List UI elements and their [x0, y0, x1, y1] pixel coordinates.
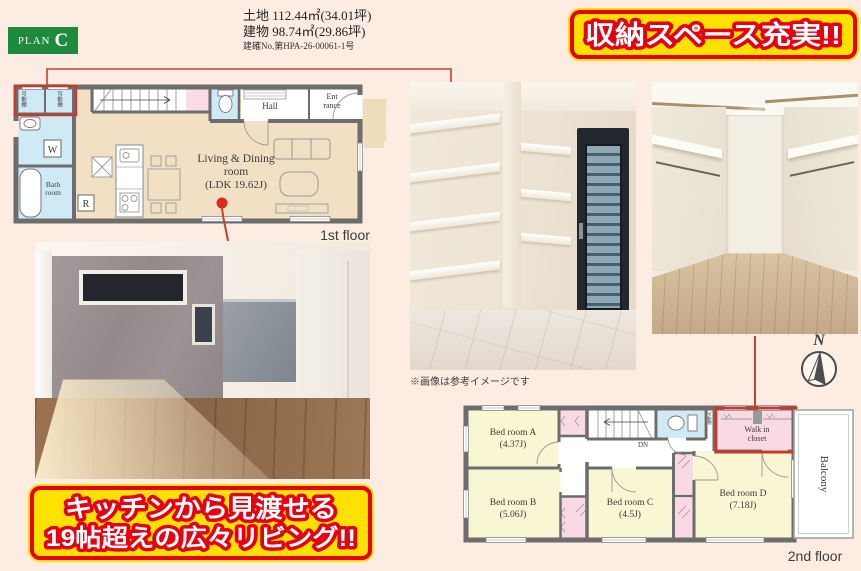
bedroom-b-label-2: (5.06J)	[500, 509, 527, 520]
permit-number: 建確No.第HPA-26-00061-1号	[243, 40, 371, 53]
photo-disclaimer: ※画像は参考イメージです	[410, 373, 530, 388]
curtain	[35, 251, 52, 422]
floor1-caption: 1st floor	[300, 227, 390, 243]
wic-wall-stub	[753, 410, 762, 424]
bedroom-c-label-1: Bed room C	[607, 498, 653, 508]
shoe-shelf-icon	[244, 90, 286, 99]
kitchen-counter-icon	[116, 145, 143, 217]
small-window	[192, 304, 215, 346]
storage-banner-text: 収納スペース充実!!	[585, 20, 841, 50]
photo-ceiling	[410, 82, 636, 111]
entrance-label-2: rance	[323, 101, 341, 110]
washer-label: W	[48, 145, 58, 156]
closet-1f	[186, 88, 210, 112]
sink-icon	[20, 117, 40, 130]
area-info: 土地 112.44㎡(34.01坪) 建物 98.74㎡(29.86坪) 建確N…	[243, 8, 371, 53]
closet-b	[561, 497, 586, 540]
slit-window	[79, 270, 188, 304]
bath-label-2: room	[45, 188, 61, 197]
living-banner-text-svg: キッチンから見渡せる 19帖超えの広々リビング!!	[38, 492, 364, 554]
counter-x-icon	[92, 157, 112, 177]
living-banner: キッチンから見渡せる 19帖超えの広々リビング!!	[30, 486, 372, 560]
bedroom-a-label-1: Bed room A	[490, 428, 537, 438]
bedroom-c-label-2: (4.5J)	[619, 509, 641, 520]
compass-icon: N	[795, 330, 843, 394]
shelf-right-label: 可動棚	[56, 91, 63, 109]
floor2-caption: 2nd floor	[770, 548, 860, 564]
floorplan-2f: Balcony Bed room A (4.37J) Bed room B (5…	[462, 402, 858, 547]
plan-badge-letter: C	[55, 30, 69, 52]
bedroom-d-label-2: (7.18J)	[730, 500, 757, 511]
wic-label-1: Walk in	[745, 425, 770, 434]
balcony-label: Balcony	[818, 456, 830, 493]
living-banner-line1: キッチンから見渡せる	[65, 494, 337, 523]
wic-shelf-label: 可動棚	[708, 412, 713, 426]
bedroom-a-label-2: (4.37J)	[500, 439, 527, 450]
floorplan-1f: 可動棚 可動棚 W Bath room Hall Ent rance Livin…	[12, 83, 390, 225]
ldk-label-2: room	[224, 166, 248, 178]
bathtub-icon	[20, 169, 41, 217]
left-wall	[652, 107, 726, 271]
ldk-label-1: Living & Dining	[197, 153, 275, 165]
building-area: 建物 98.74㎡(29.86坪)	[243, 24, 371, 40]
door-frame-line	[347, 261, 349, 398]
entrance-label-1: Ent	[326, 92, 338, 101]
living-banner-line2: 19帖超えの広々リビング!!	[46, 524, 356, 552]
land-area: 土地 112.44㎡(34.01坪)	[243, 8, 371, 24]
back-hall-wall	[296, 251, 370, 417]
entrance-storage-photo	[410, 82, 636, 370]
flyer-page: PLAN C 土地 112.44㎡(34.01坪) 建物 98.74㎡(29.8…	[0, 0, 861, 571]
plan-badge-prefix: PLAN	[18, 35, 51, 47]
bedroom-b-label-1: Bed room B	[490, 498, 536, 508]
back-wall	[726, 115, 784, 261]
storage-banner-text-svg: 収納スペース充実!!	[578, 16, 849, 53]
wic-label-2: closet	[748, 434, 767, 443]
door-glass	[585, 144, 622, 309]
walkin-closet-photo	[652, 82, 858, 334]
hall-label: Hall	[262, 101, 278, 111]
bedroom-d-label-1: Bed room D	[720, 489, 767, 499]
fridge-label: R	[83, 199, 90, 210]
balcony: Balcony	[794, 410, 853, 538]
bedroom-a	[469, 410, 559, 468]
closet-d	[674, 498, 693, 540]
stairs-room-2f	[590, 410, 653, 439]
shelf-left-label: 可動棚	[20, 91, 27, 109]
front-door	[577, 128, 629, 330]
door-handle	[579, 223, 583, 239]
plan-badge: PLAN C	[8, 27, 78, 54]
toilet-icon	[218, 90, 233, 113]
storage-banner: 収納スペース充実!!	[570, 10, 857, 59]
closet-a	[561, 410, 586, 435]
tile-floor	[410, 310, 636, 370]
stairs-down-label: DN	[638, 441, 648, 449]
right-wall	[784, 107, 858, 271]
living-room-photo	[35, 242, 370, 479]
ldk-label-3: (LDK 19.62J)	[205, 179, 267, 191]
compass-north-label: N	[812, 332, 826, 349]
porch-step	[364, 141, 384, 148]
tile-lines	[410, 310, 636, 370]
shelf-pillar	[503, 82, 521, 307]
closet-c	[674, 453, 693, 494]
porch	[360, 99, 386, 141]
kitchen-counter-wall	[223, 299, 297, 383]
